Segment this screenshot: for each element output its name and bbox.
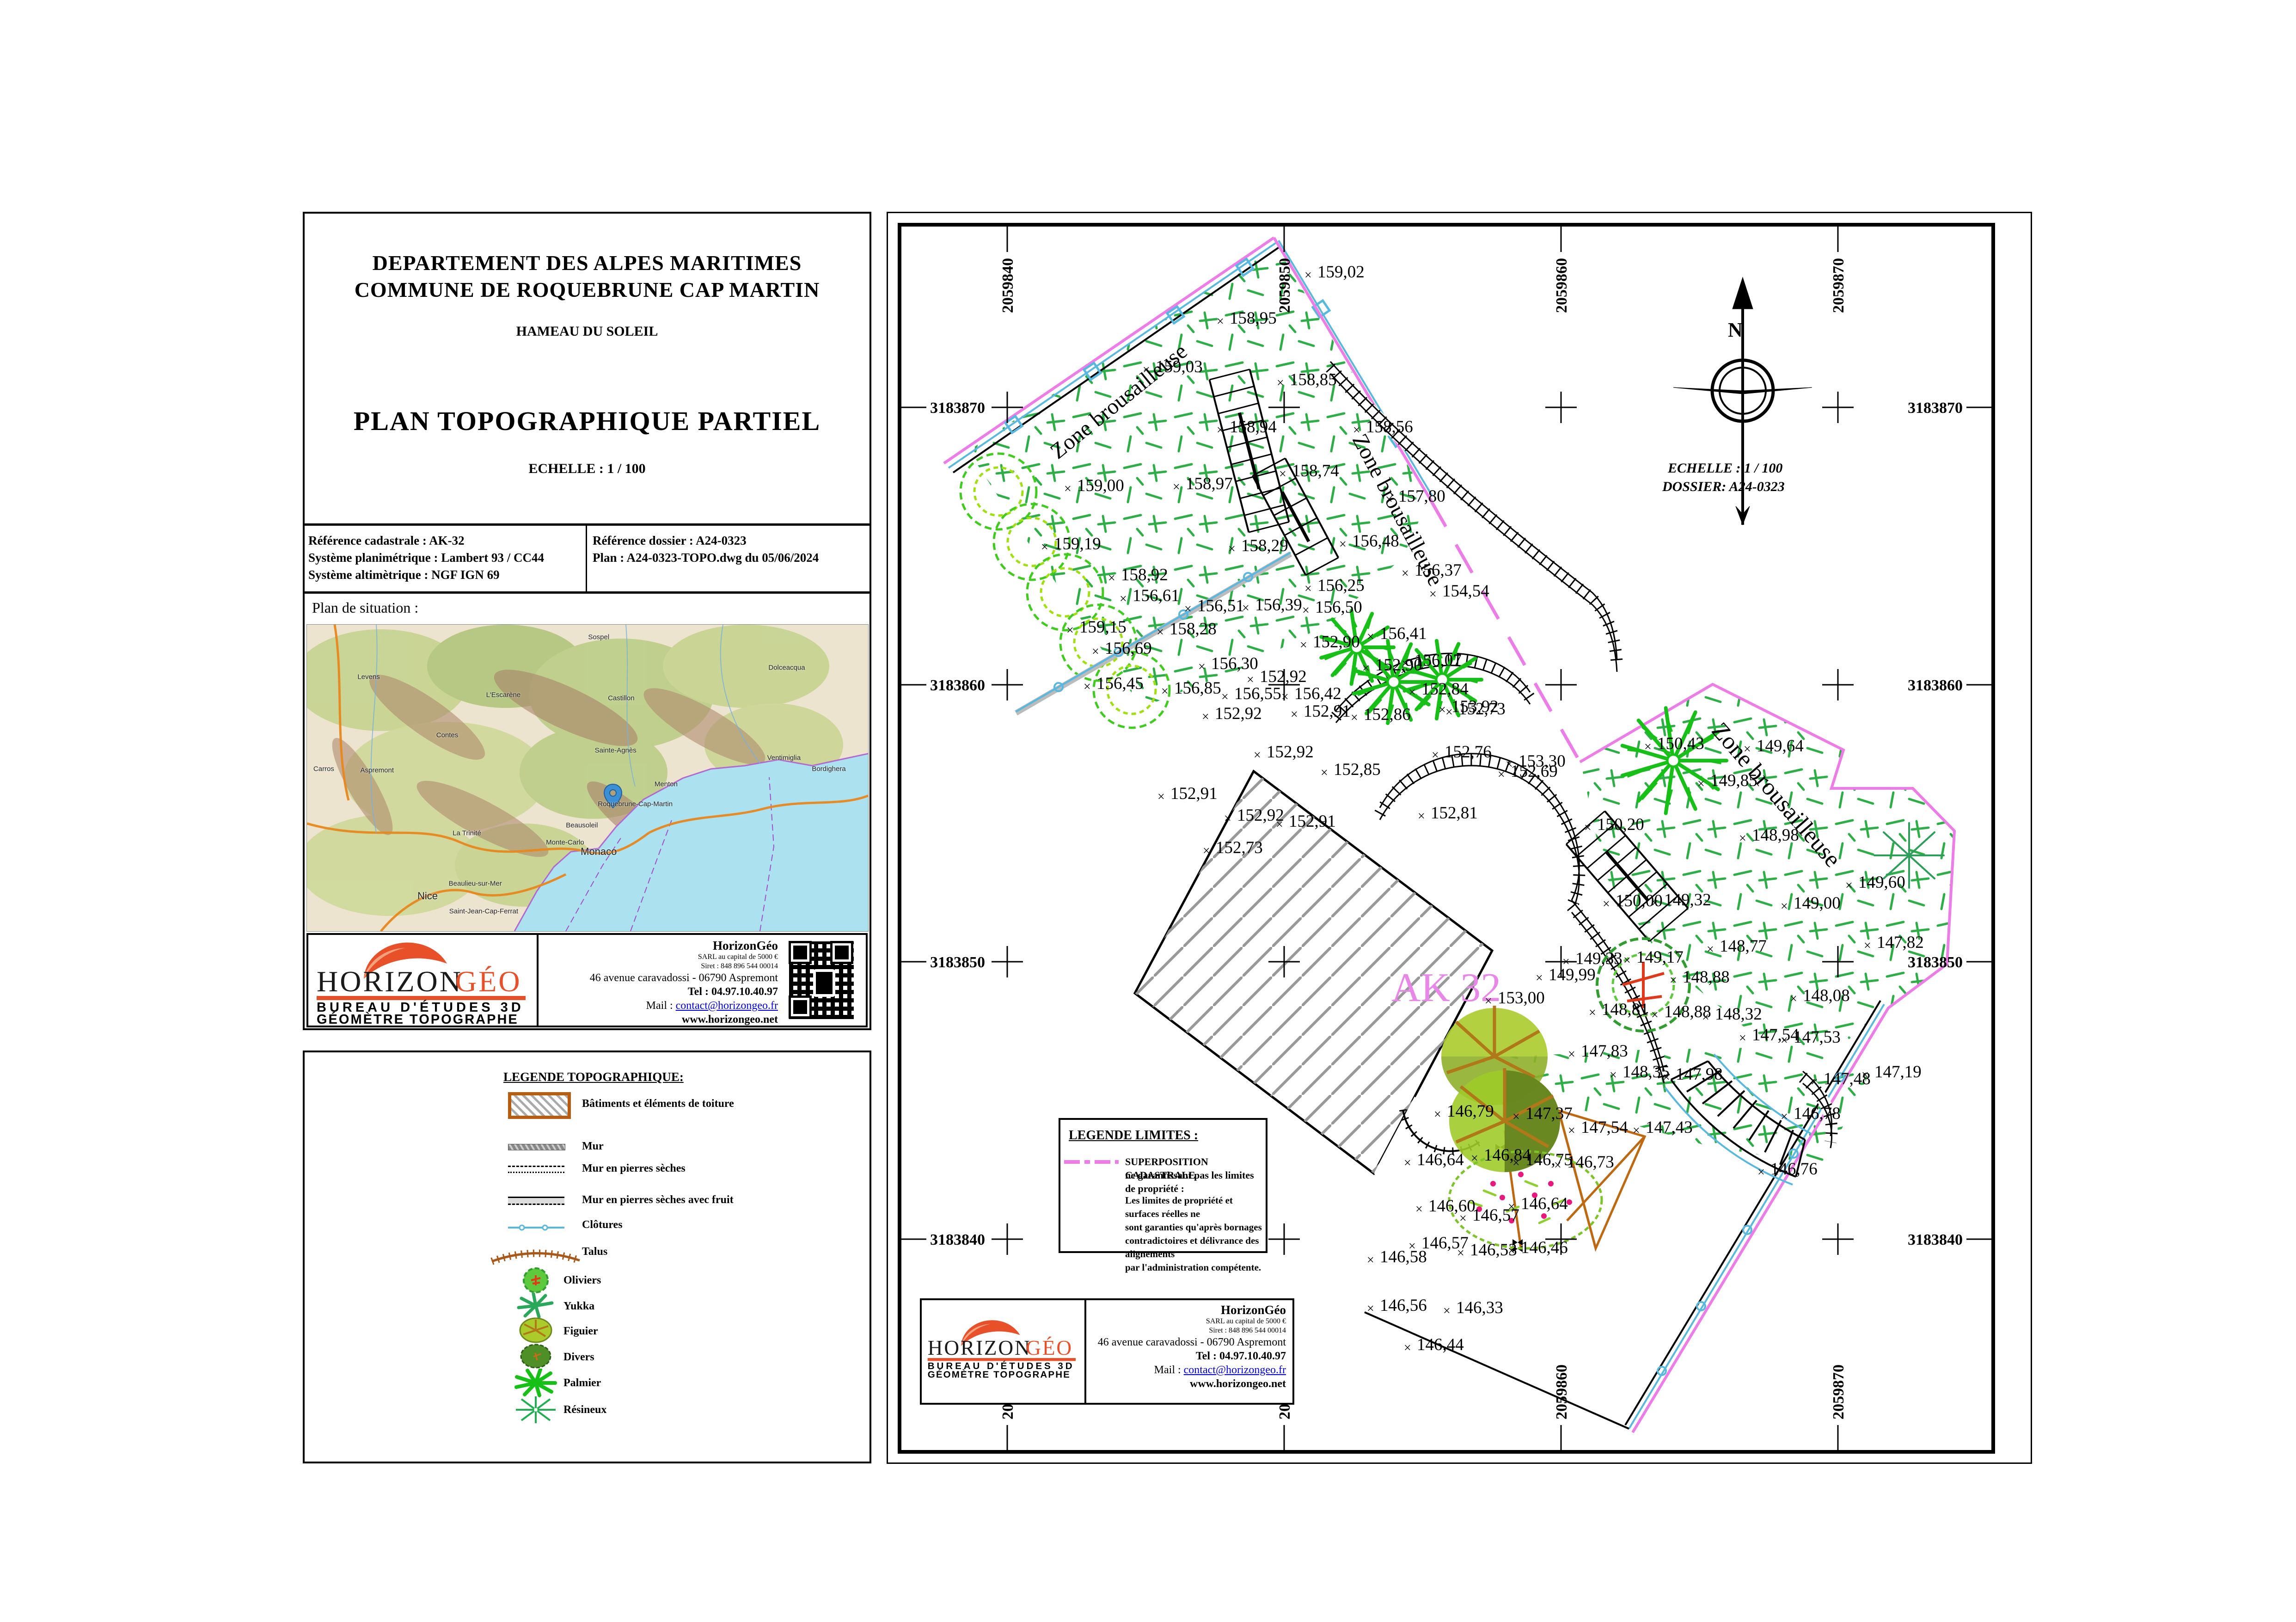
svg-text:3183850: 3183850 [930, 954, 985, 971]
svg-text:146,84: 146,84 [1484, 1146, 1531, 1165]
svg-text:156,50: 156,50 [1315, 598, 1362, 617]
svg-text:×: × [1402, 566, 1409, 581]
svg-text:158,28: 158,28 [1169, 620, 1217, 639]
svg-text:3183860: 3183860 [930, 677, 985, 694]
svg-text:149,00: 149,00 [1794, 894, 1841, 913]
svg-text:×: × [1217, 423, 1224, 437]
svg-text:×: × [1351, 711, 1358, 725]
svg-text:158,97: 158,97 [1186, 474, 1233, 493]
svg-text:146,79: 146,79 [1447, 1102, 1494, 1121]
svg-text:146,33: 146,33 [1456, 1298, 1503, 1317]
svg-text:×: × [1108, 571, 1115, 585]
svg-text:×: × [1064, 482, 1071, 496]
svg-text:3183850: 3183850 [1908, 954, 1963, 971]
svg-text:3183870: 3183870 [1908, 399, 1963, 417]
svg-text:×: × [1300, 638, 1307, 652]
svg-text:146,73: 146,73 [1567, 1153, 1614, 1172]
svg-text:158,95: 158,95 [1230, 309, 1277, 328]
svg-text:×: × [1739, 831, 1746, 846]
svg-text:×: × [1304, 268, 1312, 283]
mail-link-2[interactable]: contact@horizongeo.fr [1184, 1364, 1286, 1376]
svg-text:×: × [1254, 748, 1261, 762]
svg-text:×: × [1184, 602, 1192, 616]
svg-text:×: × [1508, 1200, 1515, 1214]
horizon-geo-logo-small: HORIZON GÉO BUREAU D'ÉTUDES 3D GÉOMÈTRE … [922, 1296, 1084, 1398]
inframe-logo-box: HORIZON GÉO BUREAU D'ÉTUDES 3D GÉOMÈTRE … [922, 1300, 1086, 1403]
svg-text:153,00: 153,00 [1498, 989, 1545, 1008]
svg-text:158,85: 158,85 [1290, 370, 1337, 389]
svg-text:150,43: 150,43 [1657, 734, 1704, 753]
svg-text:3183860: 3183860 [1908, 677, 1963, 694]
svg-text:×: × [1041, 540, 1048, 554]
svg-text:146,76: 146,76 [1770, 1160, 1818, 1179]
svg-text:×: × [1459, 1211, 1467, 1226]
svg-text:147,98: 147,98 [1676, 1065, 1723, 1084]
svg-text:152,73: 152,73 [1458, 700, 1506, 719]
svg-text:×: × [1432, 748, 1439, 762]
svg-text:152,81: 152,81 [1431, 804, 1478, 823]
svg-text:×: × [1247, 673, 1254, 687]
compass-n: N [1728, 319, 1743, 341]
svg-text:2059850: 2059850 [1276, 258, 1293, 313]
svg-text:×: × [1279, 467, 1286, 481]
svg-text:152,92: 152,92 [1267, 743, 1314, 762]
svg-text:×: × [1404, 1156, 1411, 1170]
svg-text:156,45: 156,45 [1096, 674, 1144, 693]
svg-text:×: × [1203, 844, 1210, 858]
svg-text:×: × [1291, 707, 1298, 722]
svg-text:146,44: 146,44 [1417, 1335, 1464, 1354]
svg-text:152,91: 152,91 [1304, 702, 1351, 721]
svg-text:156,51: 156,51 [1197, 596, 1244, 615]
svg-text:149,32: 149,32 [1664, 891, 1711, 909]
svg-text:146,60: 146,60 [1428, 1197, 1476, 1216]
svg-text:×: × [1790, 992, 1797, 1006]
svg-text:×: × [1367, 630, 1374, 644]
svg-text:×: × [1418, 809, 1425, 823]
svg-text:156,48: 156,48 [1352, 532, 1399, 551]
limites-paragraph: Les limites de propriété et surfaces rée… [1125, 1194, 1264, 1274]
svg-text:×: × [1304, 582, 1312, 596]
svg-text:×: × [1457, 1246, 1464, 1260]
plan-sheet: { "title_block": { "department": "DEPART… [0, 0, 2296, 1622]
svg-text:×: × [1367, 1302, 1374, 1316]
svg-text:×: × [1633, 1124, 1640, 1138]
svg-text:3183870: 3183870 [930, 399, 985, 417]
svg-text:147,37: 147,37 [1525, 1104, 1573, 1123]
svg-text:×: × [1157, 625, 1164, 639]
legend-limites-box: LEGENDE LIMITES : SUPERPOSITION CADASTRA… [1059, 1118, 1267, 1253]
svg-text:158,92: 158,92 [1121, 565, 1168, 584]
svg-text:×: × [1781, 1033, 1788, 1048]
svg-text:2059860: 2059860 [1553, 258, 1570, 313]
svg-text:×: × [1670, 973, 1677, 988]
svg-text:×: × [1066, 623, 1074, 638]
svg-text:×: × [1702, 1010, 1709, 1025]
svg-text:148,08: 148,08 [1803, 986, 1850, 1005]
svg-text:×: × [1536, 971, 1543, 985]
svg-text:×: × [1568, 1047, 1575, 1062]
svg-text:×: × [1434, 1107, 1441, 1122]
svg-text:3183840: 3183840 [1908, 1231, 1963, 1248]
svg-text:×: × [1568, 1124, 1575, 1138]
svg-text:159,19: 159,19 [1054, 535, 1101, 553]
svg-text:×: × [1404, 1341, 1411, 1355]
svg-text:147,83: 147,83 [1581, 1042, 1628, 1061]
svg-text:×: × [1221, 690, 1229, 704]
svg-text:×: × [1498, 768, 1505, 782]
svg-text:150,20: 150,20 [1597, 815, 1644, 834]
svg-text:×: × [1739, 1031, 1746, 1045]
limites-item-sub: ne garantissant pas les limites de propr… [1125, 1168, 1266, 1195]
svg-text:×: × [1471, 1151, 1478, 1166]
svg-text:GÉOMÈTRE TOPOGRAPHE: GÉOMÈTRE TOPOGRAPHE [928, 1370, 1071, 1380]
svg-text:×: × [1512, 1156, 1520, 1170]
svg-text:154,54: 154,54 [1442, 582, 1489, 601]
svg-text:×: × [1198, 660, 1206, 674]
svg-text:3183840: 3183840 [930, 1231, 985, 1248]
svg-text:×: × [1281, 690, 1289, 704]
svg-text:×: × [1707, 942, 1714, 957]
inframe-company-block: HORIZON GÉO BUREAU D'ÉTUDES 3D GÉOMÈTRE … [920, 1298, 1294, 1405]
svg-text:147,54: 147,54 [1752, 1026, 1799, 1044]
svg-text:×: × [1120, 592, 1127, 606]
svg-text:×: × [1439, 703, 1446, 717]
svg-text:×: × [1589, 1006, 1596, 1020]
svg-text:×: × [1697, 777, 1705, 791]
svg-text:146,46: 146,46 [1521, 1238, 1568, 1257]
svg-text:159,00: 159,00 [1077, 476, 1124, 495]
svg-text:146,75: 146,75 [1525, 1150, 1573, 1169]
svg-text:×: × [1811, 1075, 1818, 1089]
svg-text:152,86: 152,86 [1364, 705, 1411, 724]
svg-text:156,25: 156,25 [1317, 576, 1365, 595]
svg-text:×: × [1228, 542, 1236, 556]
svg-text:×: × [1485, 994, 1492, 1008]
svg-text:×: × [1242, 601, 1249, 615]
svg-text:×: × [1512, 1110, 1520, 1124]
svg-text:156,30: 156,30 [1211, 654, 1258, 673]
svg-text:×: × [1321, 766, 1328, 780]
svg-text:2059840: 2059840 [999, 258, 1016, 313]
svg-text:×: × [1651, 1008, 1659, 1022]
svg-text:146,78: 146,78 [1794, 1104, 1841, 1123]
svg-text:×: × [1554, 1158, 1561, 1173]
svg-text:×: × [1084, 680, 1091, 694]
svg-text:159,15: 159,15 [1079, 618, 1127, 637]
svg-text:×: × [1864, 939, 1871, 953]
svg-text:156,41: 156,41 [1380, 624, 1427, 643]
svg-text:×: × [1651, 896, 1659, 910]
svg-text:149,17: 149,17 [1636, 948, 1684, 967]
svg-text:×: × [1663, 1070, 1670, 1085]
compass-scale: ECHELLE : 1 / 100 [1667, 461, 1782, 476]
svg-text:149,60: 149,60 [1858, 873, 1905, 892]
svg-text:×: × [1781, 899, 1788, 914]
svg-text:×: × [1562, 955, 1570, 969]
svg-text:×: × [1644, 740, 1652, 754]
svg-text:152,91: 152,91 [1170, 784, 1218, 803]
svg-text:152,69: 152,69 [1511, 762, 1558, 781]
svg-text:156,42: 156,42 [1294, 684, 1341, 703]
svg-text:×: × [1415, 1202, 1423, 1216]
svg-text:159,02: 159,02 [1317, 263, 1365, 282]
svg-text:146,64: 146,64 [1417, 1150, 1464, 1169]
svg-text:×: × [1757, 1165, 1765, 1180]
svg-text:×: × [1610, 1068, 1617, 1082]
svg-text:×: × [1443, 1304, 1451, 1318]
svg-text:2059870: 2059870 [1830, 258, 1847, 313]
svg-text:×: × [1339, 537, 1347, 552]
svg-text:×: × [1845, 879, 1853, 893]
svg-text:×: × [1408, 685, 1416, 700]
svg-text:152,90: 152,90 [1313, 633, 1360, 651]
svg-text:148,32: 148,32 [1715, 1005, 1762, 1024]
svg-text:GÉO: GÉO [1026, 1336, 1073, 1359]
svg-text:146,58: 146,58 [1380, 1247, 1427, 1266]
svg-text:152,90: 152,90 [1375, 656, 1422, 675]
cadastral-line-symbol [1064, 1160, 1119, 1164]
svg-text:×: × [1277, 376, 1284, 390]
svg-text:×: × [1202, 710, 1209, 724]
svg-text:148,88: 148,88 [1683, 968, 1730, 987]
svg-text:×: × [1781, 1110, 1788, 1124]
svg-text:147,19: 147,19 [1874, 1063, 1922, 1081]
svg-text:×: × [1367, 1253, 1374, 1267]
svg-text:×: × [1623, 953, 1631, 968]
svg-text:×: × [1508, 1244, 1515, 1258]
svg-text:2059860: 2059860 [1553, 1364, 1570, 1419]
svg-text:148,81: 148,81 [1602, 1000, 1649, 1019]
legend-limites-title: LEGENDE LIMITES : [1069, 1128, 1198, 1143]
svg-text:148,77: 148,77 [1720, 937, 1767, 956]
svg-text:152,91: 152,91 [1289, 812, 1336, 831]
svg-text:156,69: 156,69 [1105, 639, 1152, 658]
svg-text:152,84: 152,84 [1421, 680, 1469, 699]
svg-text:×: × [1217, 314, 1224, 329]
svg-text:147,53: 147,53 [1794, 1028, 1841, 1047]
svg-text:×: × [1173, 480, 1180, 494]
svg-text:152,85: 152,85 [1334, 760, 1381, 779]
svg-text:×: × [1302, 603, 1310, 618]
svg-text:×: × [1157, 790, 1165, 804]
svg-text:×: × [1092, 645, 1099, 659]
compass-dossier: DOSSIER: A24-0323 [1662, 479, 1785, 494]
svg-text:×: × [1445, 705, 1453, 719]
svg-text:156,55: 156,55 [1234, 684, 1281, 703]
svg-text:149,99: 149,99 [1549, 965, 1596, 984]
svg-text:×: × [1224, 811, 1231, 826]
svg-text:152,92: 152,92 [1260, 667, 1307, 686]
svg-text:×: × [1429, 587, 1437, 602]
inframe-company-contact: HorizonGéo SARL au capital de 5000 € Sir… [1093, 1303, 1286, 1391]
svg-text:×: × [1276, 817, 1283, 832]
svg-text:152,76: 152,76 [1445, 743, 1492, 762]
svg-text:152,73: 152,73 [1216, 838, 1263, 857]
svg-text:156,61: 156,61 [1133, 586, 1180, 605]
svg-text:152,92: 152,92 [1215, 704, 1262, 723]
svg-text:2059870: 2059870 [1830, 1364, 1847, 1419]
svg-text:158,29: 158,29 [1241, 536, 1288, 555]
svg-text:HORIZON: HORIZON [928, 1336, 1031, 1359]
svg-text:×: × [1362, 661, 1370, 676]
svg-text:147,82: 147,82 [1877, 933, 1924, 952]
svg-text:×: × [1584, 821, 1592, 835]
svg-text:×: × [1161, 684, 1169, 699]
svg-text:×: × [1861, 1068, 1869, 1082]
svg-text:149,64: 149,64 [1757, 737, 1804, 756]
svg-text:156,39: 156,39 [1255, 596, 1302, 614]
svg-text:149,33: 149,33 [1575, 949, 1623, 968]
svg-text:158,56: 158,56 [1366, 418, 1413, 436]
svg-text:158,74: 158,74 [1292, 461, 1339, 480]
svg-text:158,94: 158,94 [1230, 418, 1277, 436]
svg-text:146,64: 146,64 [1521, 1194, 1568, 1213]
svg-text:147,43: 147,43 [1646, 1118, 1693, 1137]
svg-text:×: × [1603, 897, 1610, 911]
svg-text:147,54: 147,54 [1581, 1118, 1628, 1137]
svg-text:156,85: 156,85 [1174, 679, 1221, 698]
svg-text:146,56: 146,56 [1380, 1296, 1427, 1315]
